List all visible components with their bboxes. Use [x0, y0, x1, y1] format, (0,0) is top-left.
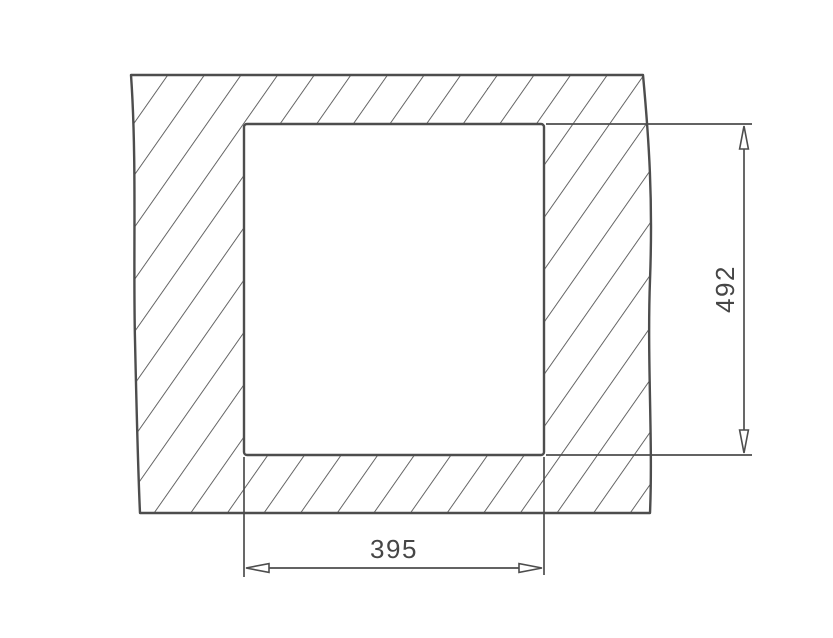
arrowhead-right-icon	[519, 564, 542, 573]
arrowhead-left-icon	[246, 564, 269, 573]
cutout-opening	[244, 124, 544, 455]
width-dimension-label: 395	[370, 534, 418, 564]
height-dimension-label: 492	[710, 265, 740, 313]
drawing-canvas: 492 395	[0, 0, 833, 638]
arrowhead-down-icon	[740, 430, 749, 453]
technical-drawing: 492 395	[0, 0, 833, 638]
arrowhead-up-icon	[740, 126, 749, 149]
